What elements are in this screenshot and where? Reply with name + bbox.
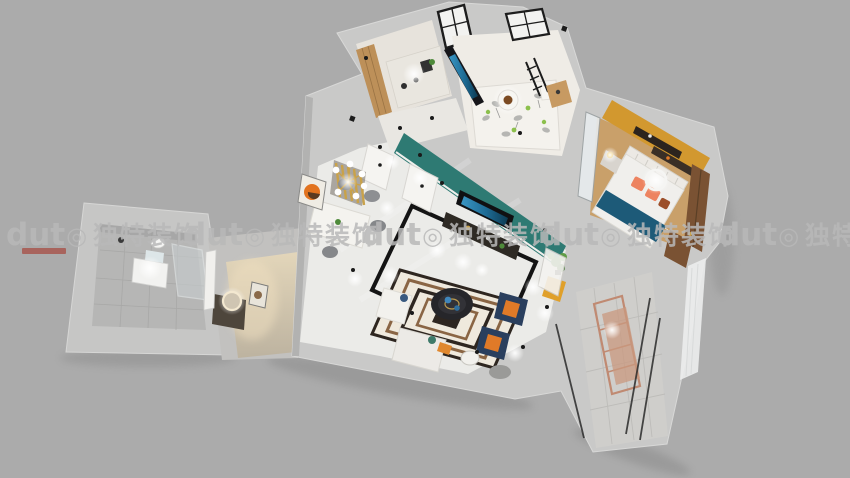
wardrobe-handle: [688, 232, 692, 236]
shelf-decor-1: [648, 134, 652, 138]
kitchen-light-glow: [403, 63, 425, 85]
bathroom-door: [204, 250, 216, 310]
blue-glass-decor-1: [445, 297, 452, 304]
apartment-3d-render: [0, 0, 850, 478]
tv-console-decor-white: [486, 236, 490, 240]
dining-chair-3: [370, 220, 386, 232]
render-canvas: dut◎ 独特装饰 dut◎ 独特装饰 dut◎ 独特装饰 dut◎ 独特装饰 …: [0, 0, 850, 478]
kitchen-appliance: [401, 83, 407, 89]
tv-console-plant: [499, 243, 504, 248]
blue-glass-decor-2: [454, 305, 460, 311]
coffee-table-top: [438, 294, 466, 314]
floor-mat: [489, 365, 511, 379]
kitchen-plant: [429, 59, 435, 65]
nightstand-lamp-glow: [602, 147, 618, 163]
shower-glass: [172, 244, 208, 300]
round-mirror: [223, 292, 241, 310]
kids-pendant-center: [504, 96, 513, 105]
vanity-light-glow: [138, 256, 162, 280]
toilet: [151, 238, 165, 248]
tv-console-decor-gold: [466, 226, 471, 231]
hall-art-motif: [254, 291, 262, 299]
dining-chair-2: [364, 190, 380, 202]
kids-desk-item: [556, 90, 560, 94]
dining-table-plant: [335, 219, 341, 225]
chaise-navy-pillow: [400, 294, 408, 302]
kitchen-spot-dot: [364, 56, 368, 60]
bathroom-dark-item: [118, 237, 124, 243]
dining-chair-4: [322, 246, 338, 258]
sofa-teal-pillow: [428, 336, 436, 344]
balcony-light-glow: [603, 321, 621, 339]
door-handle-1: [378, 163, 382, 167]
shelf-decor-2: [666, 156, 670, 160]
